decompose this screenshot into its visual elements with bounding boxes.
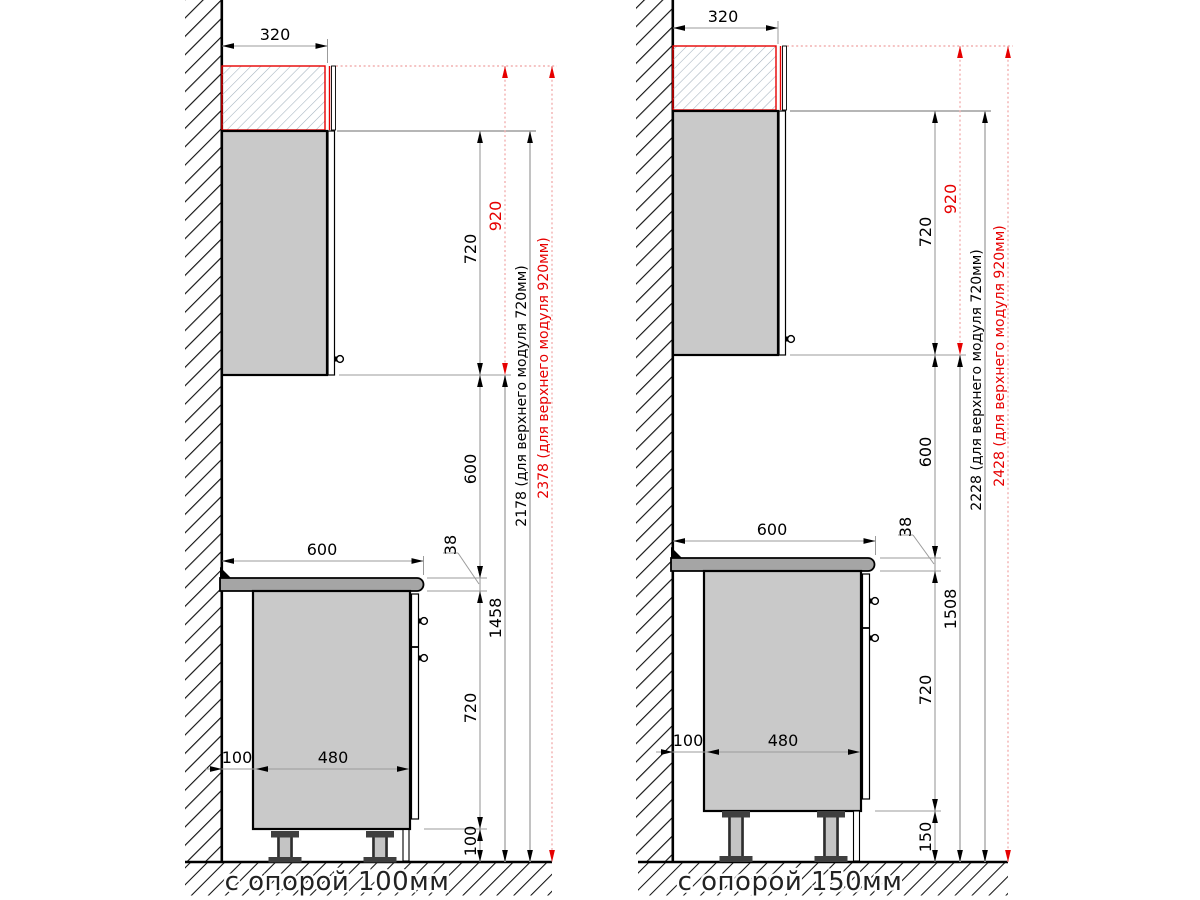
caption-support-100: с опорой 100мм <box>225 867 450 897</box>
dim-600-gap-label: 600 <box>461 454 480 485</box>
dim-upper-720-label: 720 <box>461 234 480 265</box>
panel-support-150: 320 600 100 480 720 600 38 7 <box>636 0 1013 897</box>
dim-total-920-label: 2378 (для верхнего модуля 920мм) <box>536 237 552 498</box>
dim-leg-label: 100 <box>461 826 480 857</box>
caption-support-150: с опорой 150мм <box>678 867 903 897</box>
cabinet-leg <box>815 811 848 862</box>
dim-upper-720-label: 720 <box>916 217 935 248</box>
cabinet-leg <box>720 811 753 862</box>
dim-floor-to-upper-label: 1458 <box>486 598 505 639</box>
dim-chain: 720 600 38 720 100 <box>441 131 480 862</box>
dim-chain: 720 600 38 720 150 <box>896 111 935 862</box>
dim-38-label: 38 <box>441 535 460 555</box>
front-bottom-panel <box>854 811 860 861</box>
dim-920-label: 920 <box>941 184 960 215</box>
dim-600-width: 600 <box>673 520 876 541</box>
handle-knob-icon <box>337 356 344 363</box>
cabinet-leg <box>269 831 302 863</box>
upper-module-920-extension <box>673 46 787 110</box>
dim-480-label: 480 <box>318 748 349 767</box>
handle-knob-icon <box>872 598 879 605</box>
dim-leg-label: 150 <box>916 822 935 853</box>
panel-support-100: 320 600 100 480 720 600 38 7 <box>185 0 557 897</box>
countertop <box>220 578 424 591</box>
handle-knob-icon <box>421 655 428 662</box>
dim-100-gap-label: 100 <box>222 748 253 767</box>
handle-knob-icon <box>872 635 879 642</box>
technical-drawing: 320 600 100 480 720 600 38 7 <box>0 0 1200 900</box>
dim-total-920-label: 2428 (для верхнего модуля 920мм) <box>992 225 1008 486</box>
dim-600-width-label: 600 <box>307 540 338 559</box>
dim-600-gap-label: 600 <box>916 437 935 468</box>
dim-38-label: 38 <box>896 517 915 537</box>
handle-knob-icon <box>421 618 428 625</box>
dim-base-720-label: 720 <box>461 693 480 724</box>
upper-module-920-extension <box>222 66 336 130</box>
upper-cabinet <box>673 111 794 355</box>
wall-hatch <box>636 0 673 862</box>
base-cabinet <box>253 591 427 861</box>
front-bottom-panel <box>403 830 409 862</box>
dim-total-720-label: 2228 (для верхнего модуля 720мм) <box>969 249 985 510</box>
dim-600-width-label: 600 <box>757 520 788 539</box>
wall-hatch <box>185 0 222 862</box>
dim-floor-to-upper-label: 1508 <box>941 589 960 630</box>
dim-320: 320 <box>222 25 328 46</box>
cabinet-leg <box>364 831 397 863</box>
dim-480-label: 480 <box>768 731 799 750</box>
dim-100-gap-label: 100 <box>673 731 704 750</box>
dim-320-label: 320 <box>708 7 739 26</box>
dim-920-label: 920 <box>486 201 505 232</box>
dim-320-label: 320 <box>260 25 291 44</box>
handle-knob-icon <box>788 336 795 343</box>
wall-trim <box>671 547 682 558</box>
upper-cabinet <box>222 131 343 375</box>
dim-base-720-label: 720 <box>916 675 935 706</box>
dim-320: 320 <box>673 7 778 28</box>
dim-600-width: 600 <box>222 540 424 561</box>
dim-total-720-label: 2178 (для верхнего модуля 720мм) <box>514 265 530 526</box>
countertop <box>671 558 875 571</box>
wall-trim <box>220 567 231 578</box>
